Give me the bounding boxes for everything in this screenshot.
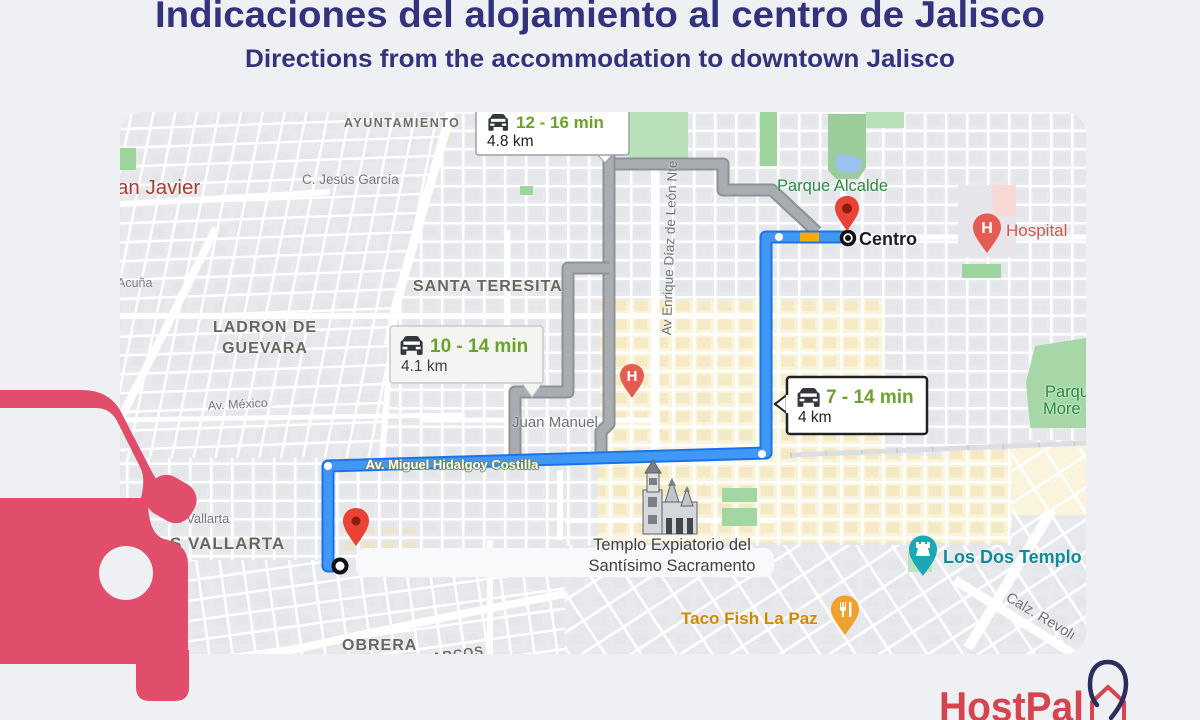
svg-text:Centro: Centro bbox=[859, 229, 917, 249]
svg-text:7 - 14 min: 7 - 14 min bbox=[826, 387, 914, 408]
svg-text:an Javier: an Javier bbox=[117, 176, 200, 199]
svg-text:Directions from the accommodat: Directions from the accommodation to dow… bbox=[245, 45, 955, 73]
svg-text:Taco Fish La Paz: Taco Fish La Paz bbox=[681, 609, 818, 628]
svg-text:12 - 16 min: 12 - 16 min bbox=[516, 113, 604, 132]
svg-text:More: More bbox=[1043, 400, 1081, 418]
svg-text:C. Jesús García: C. Jesús García bbox=[302, 172, 399, 187]
svg-text:10 - 14 min: 10 - 14 min bbox=[430, 336, 528, 357]
svg-text:LADRON DE: LADRON DE bbox=[213, 319, 317, 336]
svg-text:Templo Expiatorio del: Templo Expiatorio del bbox=[593, 536, 751, 554]
svg-text:Av. Miguel Hidalgoy Costilla: Av. Miguel Hidalgoy Costilla bbox=[366, 457, 539, 472]
svg-text:4.8 km: 4.8 km bbox=[487, 133, 534, 150]
svg-text:Hospital: Hospital bbox=[1006, 221, 1067, 240]
svg-text:4.1 km: 4.1 km bbox=[401, 358, 448, 375]
svg-text:Parqu: Parqu bbox=[1045, 383, 1089, 401]
svg-text:OBRERA: OBRERA bbox=[342, 637, 417, 654]
svg-text:Indicaciones del alojamiento a: Indicaciones del alojamiento al centro d… bbox=[155, 0, 1045, 35]
svg-text:H: H bbox=[981, 220, 993, 237]
svg-text:Juan Manuel: Juan Manuel bbox=[512, 414, 598, 431]
svg-text:GUEVARA: GUEVARA bbox=[222, 340, 308, 357]
svg-text:HostPal: HostPal bbox=[939, 683, 1084, 720]
svg-text:AYUNTAMIENTO: AYUNTAMIENTO bbox=[344, 116, 460, 130]
svg-text:H: H bbox=[627, 368, 638, 385]
svg-text:S VALLARTA: S VALLARTA bbox=[170, 534, 285, 553]
svg-text:Acuña: Acuña bbox=[117, 276, 152, 290]
svg-text:4 km: 4 km bbox=[798, 409, 832, 426]
svg-text:SANTA TERESITA: SANTA TERESITA bbox=[413, 278, 563, 295]
svg-text:Parque Alcalde: Parque Alcalde bbox=[777, 177, 888, 195]
svg-text:Los Dos Templo: Los Dos Templo bbox=[943, 547, 1082, 567]
svg-text:Santísimo Sacramento: Santísimo Sacramento bbox=[589, 557, 756, 575]
